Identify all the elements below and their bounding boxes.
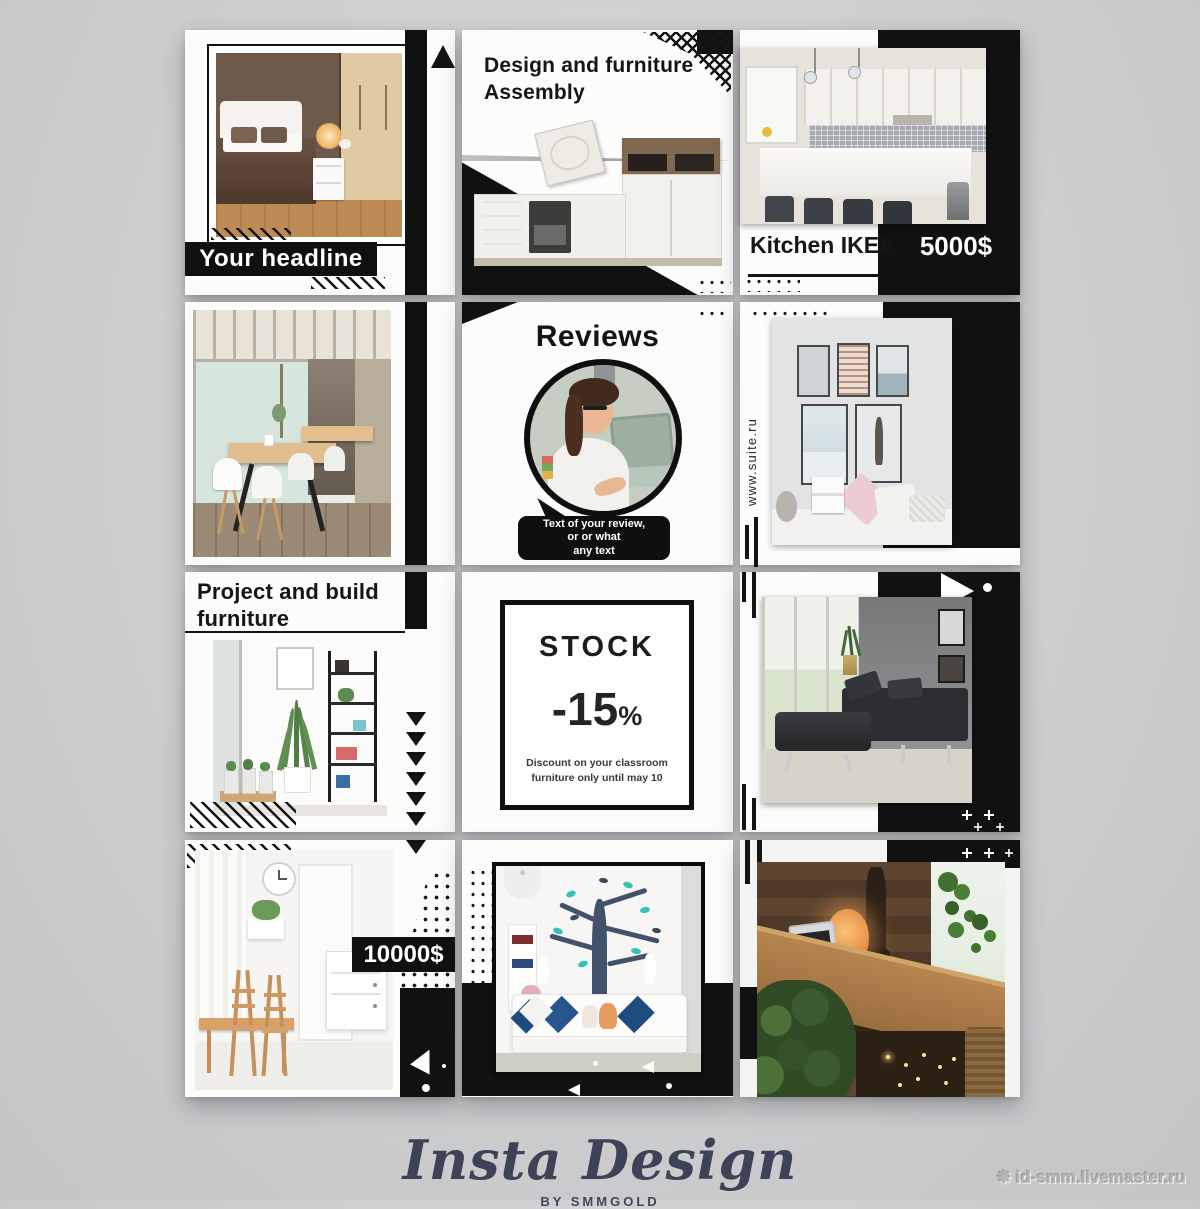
bar-stool xyxy=(843,199,873,224)
wardrobe-handle xyxy=(359,85,361,129)
assembly-title-line2: Assembly xyxy=(484,79,585,106)
chrome-leg xyxy=(901,745,905,764)
gear-icon: ❋ xyxy=(997,1168,1011,1187)
wall-sconce xyxy=(644,953,656,986)
wall-planter xyxy=(248,917,284,939)
plus-mark xyxy=(962,810,972,820)
shelf-board xyxy=(328,763,377,766)
pendant-stem xyxy=(814,48,816,73)
tile-reviews: Reviews Text of your review, or or what … xyxy=(462,302,733,565)
hatch-pattern xyxy=(190,802,296,828)
teal-leaf xyxy=(565,889,577,899)
stock-title: STOCK xyxy=(505,631,689,664)
wall-picture xyxy=(938,655,965,684)
drawer-line xyxy=(331,993,381,995)
upper-cabinet xyxy=(622,138,720,174)
bar-stool xyxy=(804,198,834,224)
kitchen-label: Kitchen IKEA xyxy=(750,232,896,259)
chair-slat xyxy=(232,989,255,993)
project-title-line2: furniture xyxy=(197,605,289,632)
stool-step xyxy=(812,493,844,496)
bar-stool xyxy=(765,196,795,222)
desk-photo xyxy=(757,862,1005,1097)
white-dot xyxy=(666,1083,672,1089)
wall-frame-tivoli xyxy=(801,404,848,485)
hanging-plant xyxy=(272,404,286,422)
shelf-item xyxy=(335,660,350,672)
pencil-cup xyxy=(542,456,554,479)
triangle-down-icon xyxy=(406,712,426,726)
review-line1: Text of your review, xyxy=(518,518,670,532)
dark-leaf xyxy=(569,914,579,921)
tile-suite: www.suite.ru xyxy=(740,302,1020,565)
tile-stock: STOCK -15% Discount on your classroom fu… xyxy=(462,572,733,832)
cabinet-seam xyxy=(670,180,672,256)
bed-pillow xyxy=(261,127,287,144)
daybed xyxy=(512,994,686,1054)
triangle-down-icon xyxy=(406,752,426,766)
window xyxy=(745,66,798,144)
discount-value: -15 xyxy=(552,683,618,735)
teal-leaf xyxy=(622,881,633,890)
table-cup xyxy=(264,434,274,446)
shag-rug xyxy=(762,749,972,803)
drawer-knob xyxy=(373,983,377,987)
black-panel xyxy=(400,988,455,1097)
daybed-base xyxy=(513,1036,685,1052)
triangle-up-icon xyxy=(431,45,455,68)
white-chair xyxy=(324,446,346,471)
figure xyxy=(875,417,883,465)
pendant-stem xyxy=(858,48,860,67)
shelf-board xyxy=(328,702,377,705)
dark-leaf xyxy=(598,878,608,884)
tile-dining: 10000$ xyxy=(185,840,455,1097)
tree-branch xyxy=(550,933,599,951)
accent-bar xyxy=(754,517,758,567)
small-pot xyxy=(224,770,238,794)
review-line3: any text xyxy=(518,545,670,559)
table-leg xyxy=(207,1030,211,1073)
chair-back xyxy=(245,970,256,1076)
assembly-title-line1: Design and furniture xyxy=(484,52,693,79)
wall-picture xyxy=(276,647,315,690)
triangle-down-icon xyxy=(406,812,426,826)
drawer-knob xyxy=(373,1004,377,1008)
chrome-leg xyxy=(947,745,951,764)
drawer-line xyxy=(316,165,341,167)
window-plant xyxy=(972,914,988,930)
white-dot xyxy=(593,1061,598,1066)
white-chair xyxy=(252,466,282,498)
hood-circle xyxy=(546,132,593,175)
wood-chair xyxy=(231,970,257,1076)
clock-hand xyxy=(278,878,287,880)
glasses xyxy=(583,406,608,410)
knit-pillow xyxy=(909,495,945,522)
hatch-pattern xyxy=(211,228,291,240)
chair-slat xyxy=(264,993,287,997)
wardrobe-handle xyxy=(385,85,387,129)
shelf-item xyxy=(353,720,366,731)
site-url-vertical: www.suite.ru xyxy=(744,390,759,506)
plant-stem xyxy=(840,630,847,656)
tall-plant xyxy=(838,626,863,675)
sofa-chaise xyxy=(775,712,872,751)
plus-mark xyxy=(974,823,982,831)
kitchen-photo xyxy=(740,48,986,224)
stock-note-line2: furniture only until may 10 xyxy=(505,771,689,786)
dark-leaf xyxy=(651,927,661,934)
sunflowers xyxy=(762,127,772,137)
tile-desk xyxy=(740,840,1020,1097)
pot-greens xyxy=(243,759,253,769)
tile-project: Project and build furniture xyxy=(185,572,455,832)
accent-bar xyxy=(742,572,746,602)
wall-frame-figure xyxy=(855,404,902,483)
string-lights xyxy=(886,1055,890,1059)
ponytail xyxy=(565,394,583,455)
chair-seat xyxy=(262,1027,288,1033)
shelf-books xyxy=(336,747,357,759)
accent-bar xyxy=(752,572,756,618)
suite-room-photo xyxy=(772,318,952,545)
blue-pillow xyxy=(617,996,654,1033)
black-strip xyxy=(405,30,427,295)
chandelier xyxy=(504,866,541,899)
plant-bench xyxy=(220,770,276,802)
cafe-photo xyxy=(193,310,391,557)
tree-branch xyxy=(603,925,660,944)
black-strip xyxy=(405,572,427,629)
small-pot xyxy=(259,771,273,794)
black-strip xyxy=(740,987,757,1059)
teddy-bear xyxy=(776,491,798,523)
hatch-pattern xyxy=(311,277,385,289)
kitchen-render xyxy=(474,122,722,284)
small-pot xyxy=(242,768,256,793)
fox-toy xyxy=(599,1003,616,1030)
chair-back xyxy=(277,975,288,1076)
pendant-light xyxy=(804,71,817,84)
plus-mark xyxy=(984,848,994,858)
bedroom-photo xyxy=(216,53,402,237)
chair-seat xyxy=(231,1025,257,1031)
plus-mark xyxy=(996,823,1004,831)
white-chair xyxy=(213,458,243,490)
kitchen-price: 5000$ xyxy=(898,228,1014,264)
chair-slat xyxy=(232,1004,255,1008)
oven xyxy=(529,201,571,252)
teal-leaf xyxy=(577,959,588,968)
plus-mark xyxy=(962,848,972,858)
plus-mark xyxy=(1005,849,1013,857)
white-dot xyxy=(442,1064,446,1068)
rug xyxy=(496,1053,701,1072)
white-dot xyxy=(983,583,992,592)
hanging-rope xyxy=(280,364,283,438)
kidsroom-photo xyxy=(496,866,701,1072)
pendant-light xyxy=(848,66,861,79)
white-triangle-icon xyxy=(642,1061,654,1073)
wall-frame xyxy=(876,345,909,397)
percent-sign: % xyxy=(618,701,642,731)
accent-bar xyxy=(752,798,756,830)
black-strip xyxy=(405,302,427,565)
tile-your-headline: Your headline xyxy=(185,30,455,295)
bed-pillow xyxy=(231,127,257,144)
shelf-board xyxy=(328,672,377,675)
step-stool xyxy=(812,477,844,513)
white-triangle-icon xyxy=(568,1084,580,1096)
kidsroom-frame xyxy=(492,862,705,1076)
watermark: ❋ id-smm.livemaster.ru xyxy=(997,1168,1186,1188)
shelf-plant xyxy=(338,688,355,702)
shelf-books xyxy=(512,935,533,944)
ladder-shelf xyxy=(328,651,377,802)
table-near xyxy=(229,443,336,463)
stock-box: STOCK -15% Discount on your classroom fu… xyxy=(500,600,694,810)
wall-sconce xyxy=(537,957,549,986)
triangle-column-pattern xyxy=(406,712,426,826)
headline-bar: Your headline xyxy=(185,242,377,276)
dot-pattern xyxy=(742,274,800,292)
wall-clock xyxy=(262,862,296,896)
plinth xyxy=(474,258,722,266)
stock-note-line1: Discount on your classroom xyxy=(505,756,689,771)
dot-pattern xyxy=(695,275,731,293)
pot-greens xyxy=(226,761,236,771)
sofa-photo xyxy=(762,597,972,803)
shelf-item xyxy=(336,775,351,789)
chair-back xyxy=(230,970,241,1076)
ceiling-beams xyxy=(193,310,391,364)
chair-back xyxy=(261,975,272,1076)
drawer-line xyxy=(331,972,381,974)
drawer-line xyxy=(316,182,341,184)
tile-assembly: Design and furniture Assembly xyxy=(462,30,733,295)
underline xyxy=(185,631,405,633)
chair-slat xyxy=(264,1007,287,1011)
white-pot xyxy=(284,767,310,794)
wardrobe xyxy=(339,53,402,200)
tile-sofa xyxy=(740,572,1020,832)
wood-chair xyxy=(262,975,288,1076)
triangle-down-icon xyxy=(406,732,426,746)
planter-greens xyxy=(252,900,280,919)
accent-bar xyxy=(745,840,750,884)
triangle-down-icon xyxy=(406,840,426,854)
reviewer-avatar xyxy=(524,359,682,517)
triangle-down-icon xyxy=(406,792,426,806)
wall-picture xyxy=(938,609,965,646)
discount-row: -15% xyxy=(505,682,689,736)
plant-stem xyxy=(852,629,861,656)
project-title-line1: Project and build xyxy=(197,578,379,605)
bunny-toy xyxy=(582,1005,597,1028)
headline-text: Your headline xyxy=(199,245,362,273)
review-line2: or or what xyxy=(518,531,670,545)
table-far xyxy=(302,426,373,441)
wall-frame-letters xyxy=(837,343,870,397)
shelf-board xyxy=(328,732,377,735)
cursor-arrow-icon xyxy=(408,1050,440,1081)
wall-frame xyxy=(797,345,830,397)
oven-window xyxy=(534,225,566,245)
tall-cabinet xyxy=(622,174,722,262)
floor xyxy=(195,1042,393,1090)
cabinet-opening xyxy=(628,154,667,171)
pot-greens xyxy=(260,762,270,771)
tile-cafe xyxy=(185,302,455,565)
brand-byline: BY SMMGOLD xyxy=(0,1194,1200,1209)
accent-bar xyxy=(745,525,749,559)
white-chair xyxy=(288,453,314,480)
plus-mark xyxy=(984,810,994,820)
window-plant xyxy=(938,872,958,892)
nightstand xyxy=(313,158,345,200)
shelf-books xyxy=(512,959,533,968)
range-hood xyxy=(534,120,605,187)
tile-kitchen-ikea: Kitchen IKEA 5000$ xyxy=(740,30,1020,295)
review-bubble: Text of your review, or or what any text xyxy=(518,516,670,560)
poster-mockup: Your headline Design and furniture Assem… xyxy=(0,0,1200,1200)
plants-photo xyxy=(213,640,387,816)
island-counter xyxy=(760,148,972,196)
photo-frame xyxy=(207,44,411,246)
accent-bar xyxy=(742,784,746,830)
sansevieria-leaves xyxy=(283,700,311,770)
teal-leaf xyxy=(639,906,650,914)
tile-kidsroom xyxy=(462,840,733,1097)
triangle-down-icon xyxy=(406,772,426,786)
reviews-title: Reviews xyxy=(462,320,733,354)
trash-bin xyxy=(947,182,969,221)
cabinet-opening xyxy=(675,154,714,171)
candlestick xyxy=(866,867,886,961)
white-dot xyxy=(422,1084,430,1092)
drawer-stack xyxy=(483,201,522,252)
watermark-text: id-smm.livemaster.ru xyxy=(1016,1168,1186,1187)
dining-price: 10000$ xyxy=(352,937,455,972)
gold-pot xyxy=(843,655,857,676)
tree-branch xyxy=(599,887,647,907)
bar-stool xyxy=(883,201,913,224)
base-cabinets xyxy=(474,194,626,260)
wicker-basket xyxy=(965,1027,1005,1098)
